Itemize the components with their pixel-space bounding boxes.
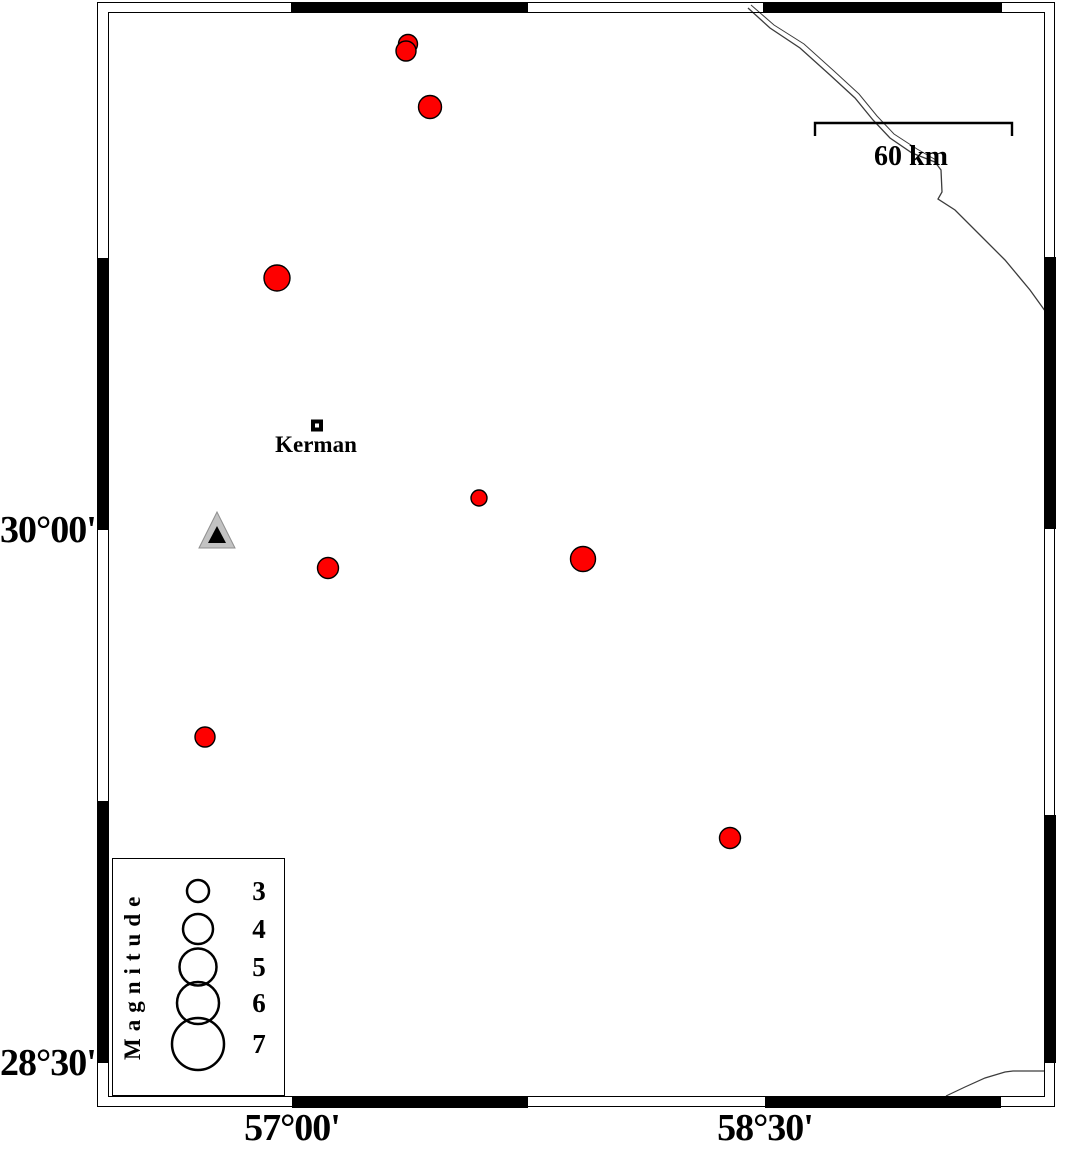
longitude-label: 58°30' bbox=[675, 1108, 855, 1148]
longitude-label: 57°00' bbox=[202, 1108, 382, 1148]
legend-magnitude-label: 4 bbox=[236, 911, 282, 947]
frame-tick-segment-right bbox=[1045, 257, 1056, 529]
fault-line bbox=[751, 5, 936, 160]
scale-bar-label: 60 km bbox=[811, 141, 1011, 173]
scale-bar bbox=[815, 123, 1012, 136]
legend-magnitude-label: 5 bbox=[236, 949, 282, 985]
frame-tick-segment-top bbox=[291, 3, 528, 13]
frame-tick-segment-top bbox=[763, 3, 1002, 13]
legend-circle bbox=[187, 880, 209, 902]
frame-tick-segment-left bbox=[97, 258, 109, 530]
frame-tick-segment-left bbox=[97, 801, 109, 1063]
earthquake-marker bbox=[264, 265, 290, 291]
latitude-label: 28°30' bbox=[0, 1041, 90, 1085]
seismicity-map-page: { "axes": { "left_labels": [ {"text": "3… bbox=[0, 0, 1066, 1145]
legend-magnitude-label: 7 bbox=[236, 1026, 282, 1062]
earthquake-marker bbox=[720, 828, 741, 849]
earthquake-marker bbox=[396, 41, 416, 61]
legend-circle bbox=[183, 914, 213, 944]
legend-circle bbox=[180, 949, 217, 986]
fault-line bbox=[946, 1071, 1045, 1096]
legend-magnitude-label: 6 bbox=[236, 985, 282, 1021]
earthquake-marker bbox=[419, 96, 442, 119]
legend-circle bbox=[172, 1018, 224, 1070]
earthquake-marker bbox=[318, 558, 339, 579]
frame-tick-segment-right bbox=[1045, 815, 1056, 1063]
city-marker bbox=[313, 422, 321, 430]
city-label: Kerman bbox=[236, 432, 396, 458]
earthquake-marker bbox=[195, 727, 215, 747]
earthquake-marker bbox=[571, 547, 596, 572]
earthquake-marker bbox=[471, 490, 487, 506]
legend-magnitude-label: 3 bbox=[236, 873, 282, 909]
latitude-label: 30°00' bbox=[0, 508, 90, 552]
legend-title: Magnitude bbox=[120, 872, 164, 1078]
